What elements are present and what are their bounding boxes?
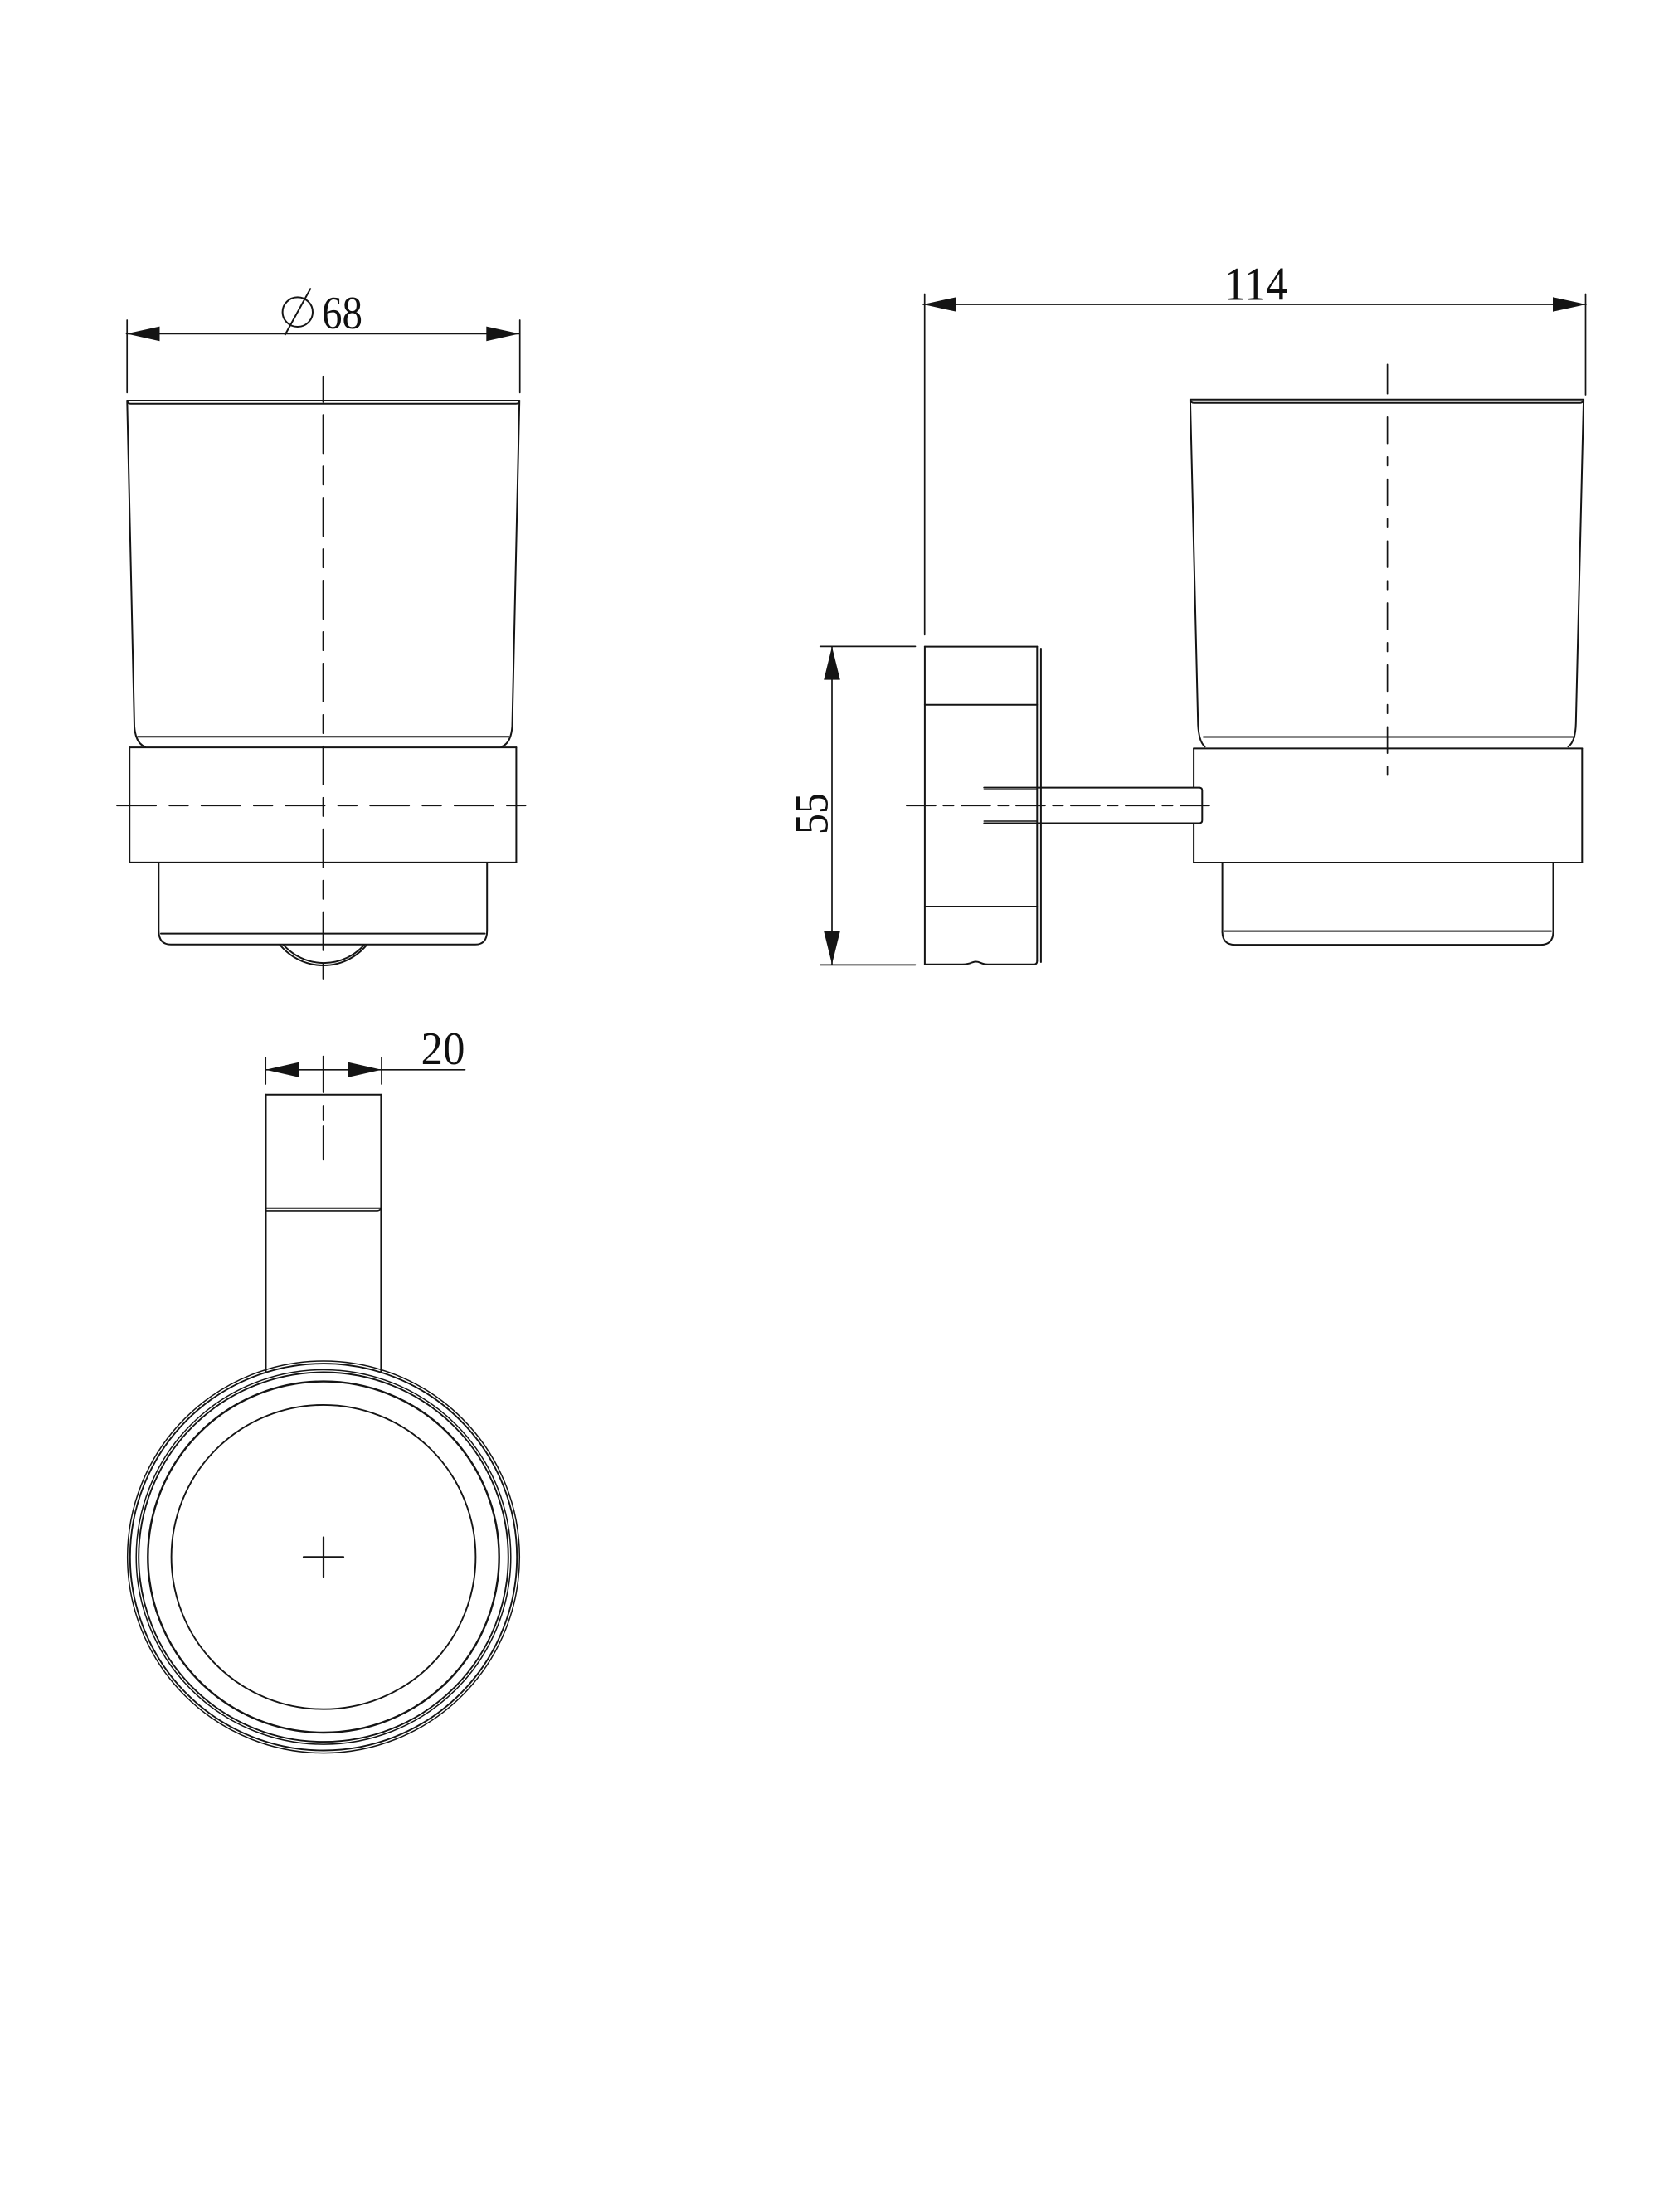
svg-text:55: 55 bbox=[786, 793, 839, 834]
svg-text:68: 68 bbox=[322, 288, 362, 339]
svg-text:20: 20 bbox=[421, 1023, 465, 1075]
svg-text:114: 114 bbox=[1224, 259, 1287, 311]
